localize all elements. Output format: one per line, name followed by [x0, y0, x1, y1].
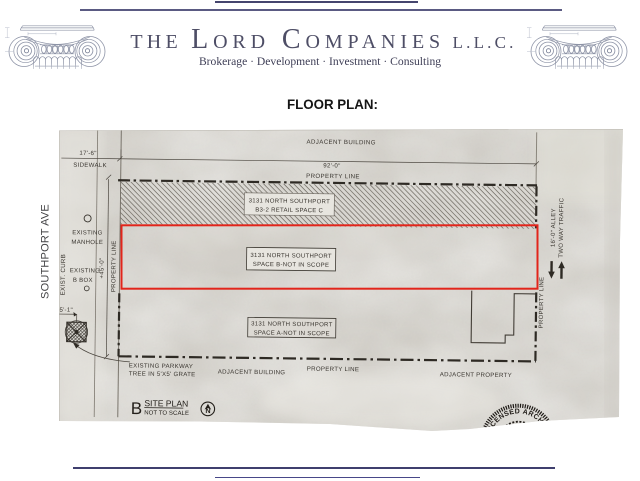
svg-text:16'-0" ALLEY: 16'-0" ALLEY: [551, 208, 557, 247]
svg-text:ADJACENT PROPERTY: ADJACENT PROPERTY: [440, 371, 512, 379]
svg-text:PROPERTY LINE: PROPERTY LINE: [307, 366, 360, 374]
svg-text:ADJACENT BUILDING: ADJACENT BUILDING: [218, 369, 286, 377]
svg-text:3131 NORTH SOUTHPORT: 3131 NORTH SOUTHPORT: [251, 321, 333, 328]
svg-text:SOUTHPORT AVE: SOUTHPORT AVE: [40, 204, 52, 299]
svg-text:ADJACENT BUILDING: ADJACENT BUILDING: [307, 139, 376, 147]
svg-text:TWO WAY TRAFFIC: TWO WAY TRAFFIC: [559, 197, 566, 257]
svg-text:SPACE B-NOT IN SCOPE: SPACE B-NOT IN SCOPE: [253, 262, 330, 269]
svg-text:5'-1": 5'-1": [59, 308, 73, 314]
svg-text:B: B: [131, 399, 143, 418]
svg-text:TREE IN 5'X5' GRATE: TREE IN 5'X5' GRATE: [129, 370, 196, 378]
svg-text:EXISTING: EXISTING: [72, 230, 103, 236]
svg-text:+45'-0": +45'-0": [99, 258, 105, 279]
svg-text:PROPERTY LINE: PROPERTY LINE: [306, 173, 360, 181]
svg-text:EXISTING: EXISTING: [70, 268, 101, 274]
svg-text:92'-0": 92'-0": [323, 162, 340, 169]
svg-text:17'-6": 17'-6": [79, 150, 96, 157]
svg-text:MANHOLE: MANHOLE: [71, 240, 103, 246]
svg-text:SITE PLAN: SITE PLAN: [144, 398, 188, 409]
svg-text:EXIST. CURB: EXIST. CURB: [60, 254, 68, 296]
svg-text:NOT TO SCALE: NOT TO SCALE: [144, 410, 189, 417]
svg-text:3131 NORTH SOUTHPORT: 3131 NORTH SOUTHPORT: [250, 253, 332, 260]
svg-text:EXISTING PARKWAY: EXISTING PARKWAY: [129, 362, 193, 370]
svg-text:SPACE A-NOT IN SCOPE: SPACE A-NOT IN SCOPE: [254, 330, 330, 337]
svg-text:3131 NORTH SOUTHPORT: 3131 NORTH SOUTHPORT: [249, 198, 331, 205]
svg-text:PROPERTY LINE: PROPERTY LINE: [539, 277, 546, 329]
svg-text:SIDEWALK: SIDEWALK: [73, 162, 107, 169]
svg-text:PROPERTY LINE: PROPERTY LINE: [111, 240, 118, 292]
svg-text:B BOX: B BOX: [73, 278, 93, 284]
svg-text:B3-2 RETAIL SPACE C: B3-2 RETAIL SPACE C: [255, 207, 323, 214]
